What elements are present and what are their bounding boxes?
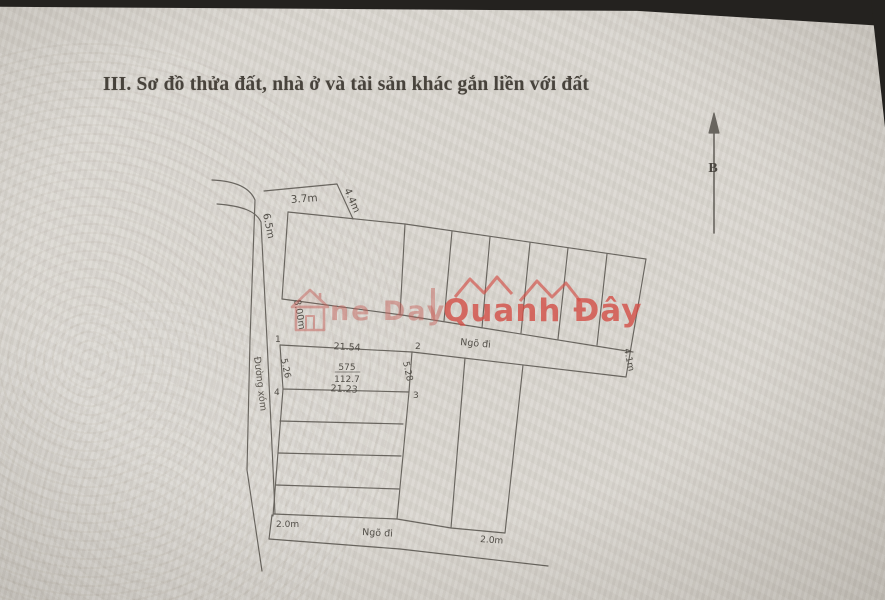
top-block-divider-3 <box>482 237 490 328</box>
dim-bottom-alley-left: 2.0m <box>276 520 299 530</box>
bottom-alley-bottom-line <box>269 539 548 566</box>
lower-right-divider-2 <box>505 365 523 533</box>
top-block-divider-6 <box>597 254 607 345</box>
parcel-corner-1: 1 <box>275 335 281 345</box>
top-block-divider-1 <box>400 224 405 315</box>
north-label: B <box>708 161 717 176</box>
dim-top-notch-width: 3.7m <box>290 192 318 206</box>
village-road-label: Đường xóm <box>251 356 269 412</box>
dim-road-frontage: 6.5m <box>260 212 276 239</box>
parcel-edge-left: 5.26 <box>278 358 292 380</box>
top-block-divider-2 <box>444 231 452 321</box>
top-block-divider-5 <box>558 248 568 339</box>
watermark-mountain-stroke-1 <box>455 277 512 297</box>
dim-bottom-alley-right: 2.0m <box>480 535 504 547</box>
parcel-corner-4: 4 <box>274 388 280 398</box>
top-block-top-edge <box>288 212 646 259</box>
alley-bottom-label: Ngõ đi <box>362 527 393 540</box>
watermark-mountain-stroke-2 <box>520 281 580 301</box>
parcel-corner-3: 3 <box>413 391 419 401</box>
parcel-edge-right: 5.28 <box>400 361 414 383</box>
road-inner-line <box>217 204 275 514</box>
parcel-number: 575 <box>338 363 355 373</box>
alley-bottom-line <box>280 345 626 377</box>
parcel-corner-2: 2 <box>415 342 421 352</box>
north-arrow-head <box>709 113 719 133</box>
dim-alley-right: 4.1m <box>621 348 636 373</box>
parcel-edge-bottom: 21.23 <box>330 383 358 395</box>
lower-block-row-1 <box>280 421 403 424</box>
lower-block-row-2 <box>278 453 401 456</box>
parcel-edge-top: 21.54 <box>333 341 361 353</box>
top-block-left-edge <box>282 212 288 299</box>
scanned-land-certificate-photo: III. Sơ đồ thửa đất, nhà ở và tài sản kh… <box>0 0 885 600</box>
bottom-alley-left-end <box>269 515 272 539</box>
alley-top-label: Ngõ đi <box>460 337 491 351</box>
lower-right-divider-1 <box>451 358 465 528</box>
top-block-divider-4 <box>521 243 530 333</box>
cadastral-diagram: 3.7m 4.4m 6.5m 8.00m Đường xóm Ngõ đi 4.… <box>0 0 885 600</box>
lower-block-row-3 <box>276 485 399 489</box>
